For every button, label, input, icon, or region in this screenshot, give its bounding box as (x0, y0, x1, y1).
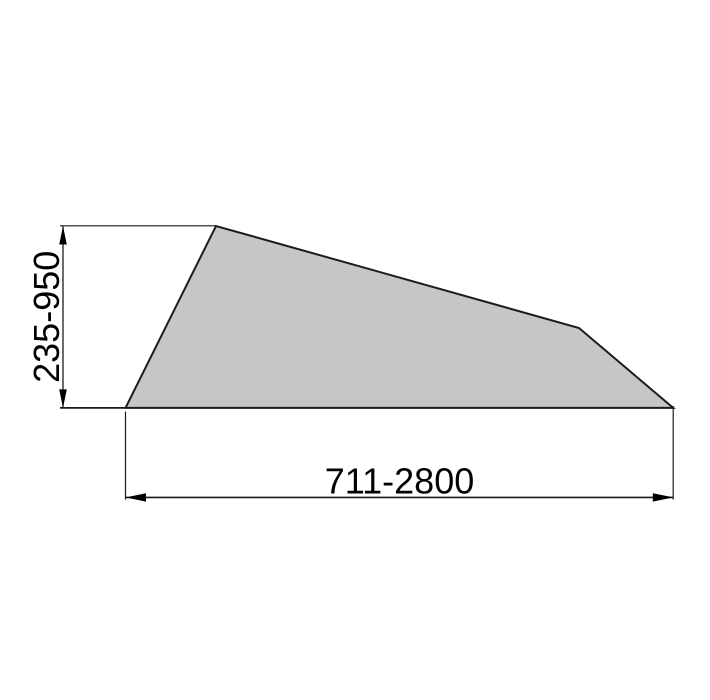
svg-text:711-2800: 711-2800 (325, 461, 474, 502)
svg-text:235-950: 235-950 (26, 251, 67, 383)
